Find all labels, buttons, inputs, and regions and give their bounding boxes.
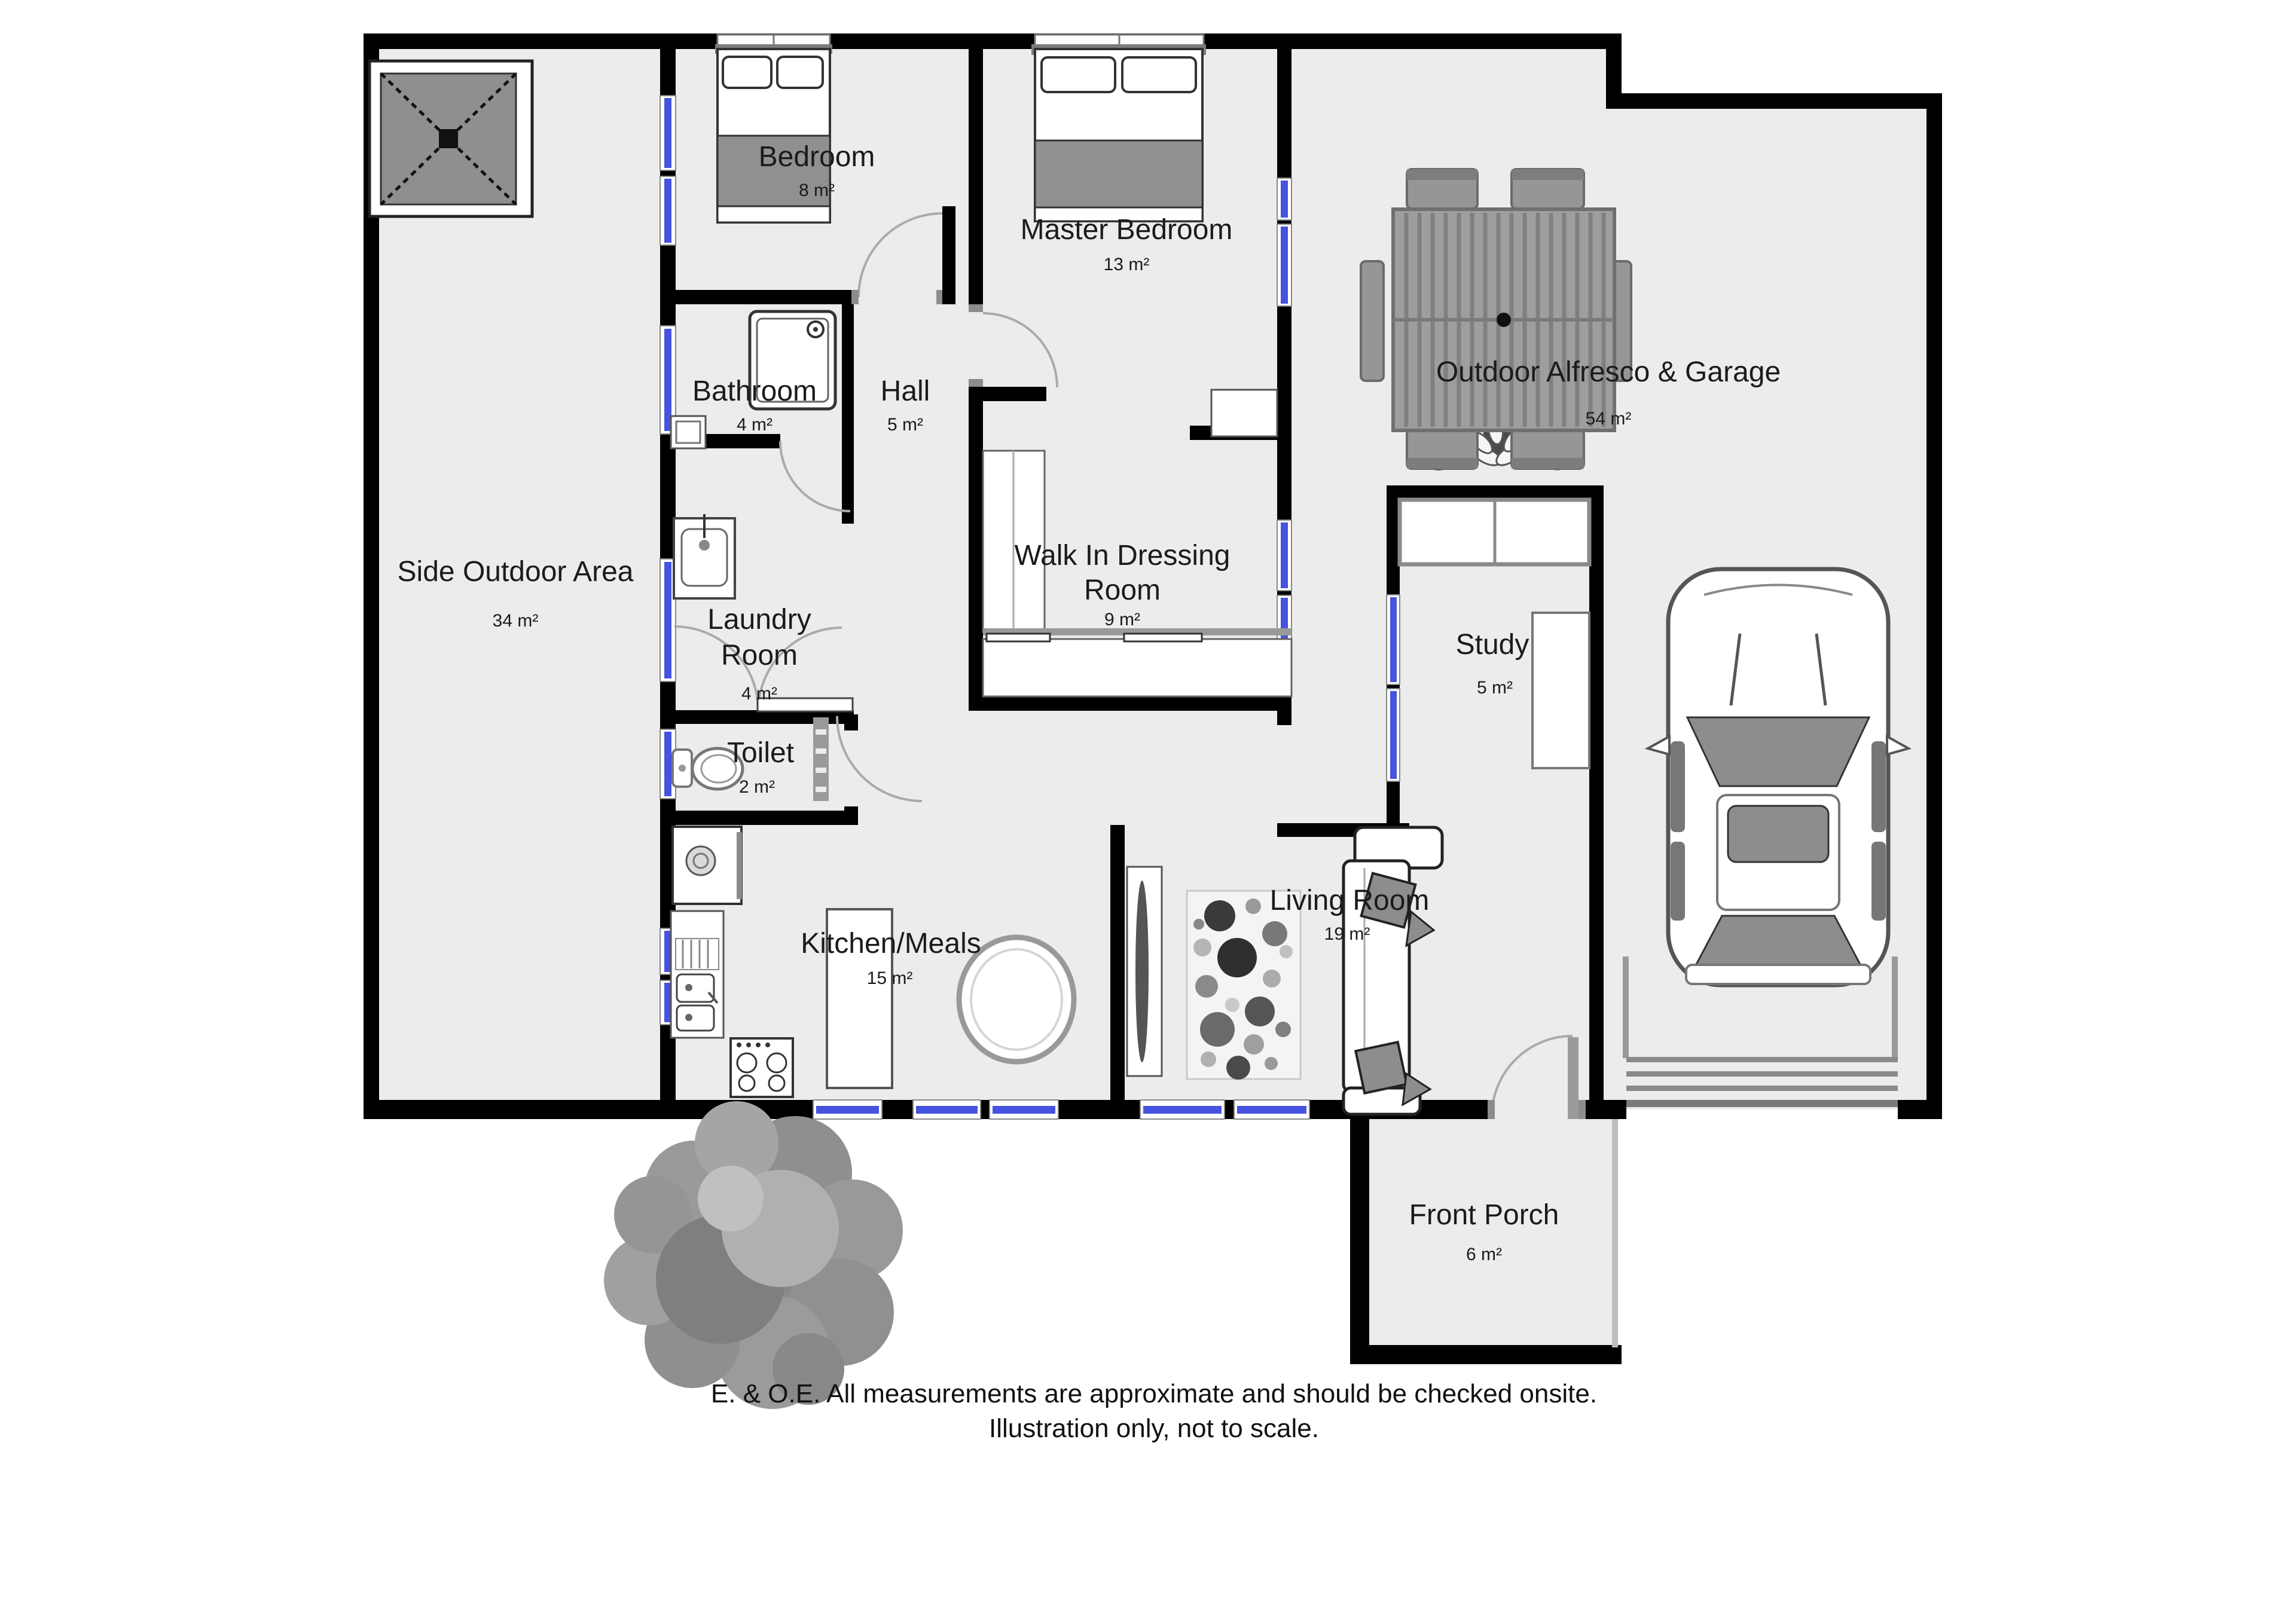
- footer-line-1: E. & O.E. All measurements are approxima…: [711, 1379, 1597, 1408]
- room-area-kitchen-meals: 15 m²: [867, 968, 913, 988]
- wall-a-3: [1277, 306, 1291, 520]
- wall-right: [1926, 93, 1942, 1119]
- wall-master-door-bottom: [969, 387, 1046, 401]
- window-bedroom-left: [660, 96, 676, 245]
- room-area-living-room: 19 m²: [1324, 924, 1370, 944]
- floor-plan: Bedroom 8 m² Master Bedroom 13 m² Bathro…: [0, 0, 2296, 1623]
- room-area-master-bedroom: 13 m²: [1104, 255, 1150, 274]
- room-label-side-outdoor-area: Side Outdoor Area: [398, 556, 634, 588]
- wall-bottom-1: [364, 1100, 660, 1119]
- room-area-side-outdoor-area: 34 m²: [493, 611, 539, 631]
- wall-toilet-right-b: [844, 806, 858, 825]
- tv-unit-icon: [1127, 867, 1162, 1076]
- fridge-icon: [673, 827, 742, 904]
- room-label-toilet: Toilet: [727, 737, 794, 769]
- tv-icon: [1135, 881, 1149, 1062]
- car-rear-window: [1696, 916, 1861, 965]
- wall-bottom-5: [1058, 1100, 1140, 1119]
- car-windshield: [1687, 717, 1869, 786]
- sofa-cushion: [1355, 1042, 1406, 1093]
- footer-line-2: Illustration only, not to scale.: [989, 1414, 1319, 1443]
- study-window-seat: [1400, 500, 1589, 564]
- opening-cap: [1488, 1100, 1495, 1119]
- room-label-laundry-line2: Room: [721, 640, 798, 671]
- vanity-sink-icon: [671, 416, 706, 448]
- wall-study-top: [1387, 485, 1604, 500]
- wardrobe-icon: [1211, 390, 1277, 436]
- room-area-alfresco-garage: 54 m²: [1586, 409, 1632, 429]
- wall-bottom-4: [981, 1100, 990, 1119]
- car-icon: [1648, 569, 1909, 985]
- car-side-window: [1671, 842, 1685, 921]
- wall-kitchen-living: [1110, 825, 1125, 1100]
- wall-w1-b: [660, 170, 676, 176]
- room-area-front-porch: 6 m²: [1466, 1245, 1502, 1264]
- wall-dressing-left: [969, 401, 983, 711]
- room-label-front-porch: Front Porch: [1409, 1199, 1559, 1231]
- room-area-bathroom: 4 m²: [737, 415, 773, 435]
- wall-bedroom-door-stub: [942, 206, 955, 304]
- desk-icon: [1532, 613, 1589, 768]
- wall-study-garage-right: [1589, 485, 1604, 1100]
- wall-bottom-9: [1898, 1100, 1942, 1119]
- room-area-hall: 5 m²: [887, 415, 923, 435]
- wall-top: [364, 33, 1622, 49]
- room-label-laundry-line1: Laundry: [707, 604, 811, 635]
- wall-master-left: [969, 48, 983, 311]
- opening-cap: [936, 290, 942, 304]
- kitchen-sink-icon: [671, 911, 723, 1038]
- stove-icon: [731, 1038, 793, 1097]
- room-area-dressing: 9 m²: [1104, 610, 1140, 629]
- opening-cap: [851, 290, 859, 304]
- porch-wall-left: [1350, 1119, 1369, 1364]
- floor-plan-page: Bedroom 8 m² Master Bedroom 13 m² Bathro…: [0, 0, 2296, 1623]
- outdoor-chair: [1361, 261, 1384, 381]
- wall-study-left-b: [1387, 684, 1400, 689]
- porch-wall-bottom: [1350, 1345, 1622, 1364]
- porch-edge-open: [1612, 1119, 1618, 1347]
- room-label-alfresco-garage: Outdoor Alfresco & Garage: [1436, 356, 1781, 388]
- wall-bottom-3: [882, 1100, 913, 1119]
- wall-a-4: [1277, 591, 1291, 595]
- room-label-dressing-line1: Walk In Dressing: [1015, 540, 1231, 571]
- opening-cap: [969, 379, 983, 387]
- room-label-kitchen-meals: Kitchen/Meals: [801, 928, 981, 959]
- car-side-window: [1871, 741, 1886, 832]
- room-label-dressing-line2: Room: [1084, 574, 1161, 606]
- front-door-leaf: [1568, 1037, 1578, 1119]
- footer-disclaimer: E. & O.E. All measurements are approxima…: [711, 1379, 1597, 1443]
- room-label-hall: Hall: [881, 375, 930, 407]
- room-area-toilet: 2 m²: [739, 777, 775, 797]
- car-sunroof: [1728, 806, 1828, 862]
- master-bed-icon: [1031, 44, 1206, 221]
- room-area-laundry: 4 m²: [741, 684, 777, 704]
- wall-toilet-bottom: [660, 811, 858, 825]
- wall-w1-c: [660, 245, 676, 326]
- window-study-left: [1387, 595, 1400, 781]
- toilet-door-leaf: [813, 717, 829, 801]
- laundry-sink-icon: [674, 514, 735, 598]
- opening-cap: [969, 304, 983, 312]
- rug-icon: [1187, 891, 1300, 1080]
- wall-a-1: [1277, 48, 1291, 178]
- room-label-master-bedroom: Master Bedroom: [1021, 214, 1233, 246]
- car-side-window: [1671, 741, 1685, 832]
- room-label-study: Study: [1456, 629, 1529, 661]
- wall-step-horizontal: [1606, 93, 1942, 109]
- room-label-bedroom: Bedroom: [759, 141, 875, 173]
- room-area-bedroom: 8 m²: [799, 181, 835, 200]
- room-label-bathroom: Bathroom: [692, 375, 817, 407]
- room-label-living-room: Living Room: [1270, 885, 1430, 916]
- wall-a-2: [1277, 220, 1291, 224]
- wall-dressing-bottom: [969, 696, 1291, 711]
- shade-sail-icon: [370, 61, 532, 216]
- tree-icon: [604, 1101, 903, 1409]
- wall-bedroom-bottom: [660, 290, 857, 304]
- window-master-right: [1277, 178, 1291, 306]
- wall-bottom-6: [1225, 1100, 1234, 1119]
- wall-bathroom-right: [842, 304, 854, 434]
- room-area-study: 5 m²: [1477, 678, 1513, 698]
- wall-toilet-right-a: [844, 714, 858, 730]
- wall-w1-a: [660, 48, 676, 96]
- car-side-window: [1871, 842, 1886, 921]
- opening-cap: [1578, 1100, 1586, 1119]
